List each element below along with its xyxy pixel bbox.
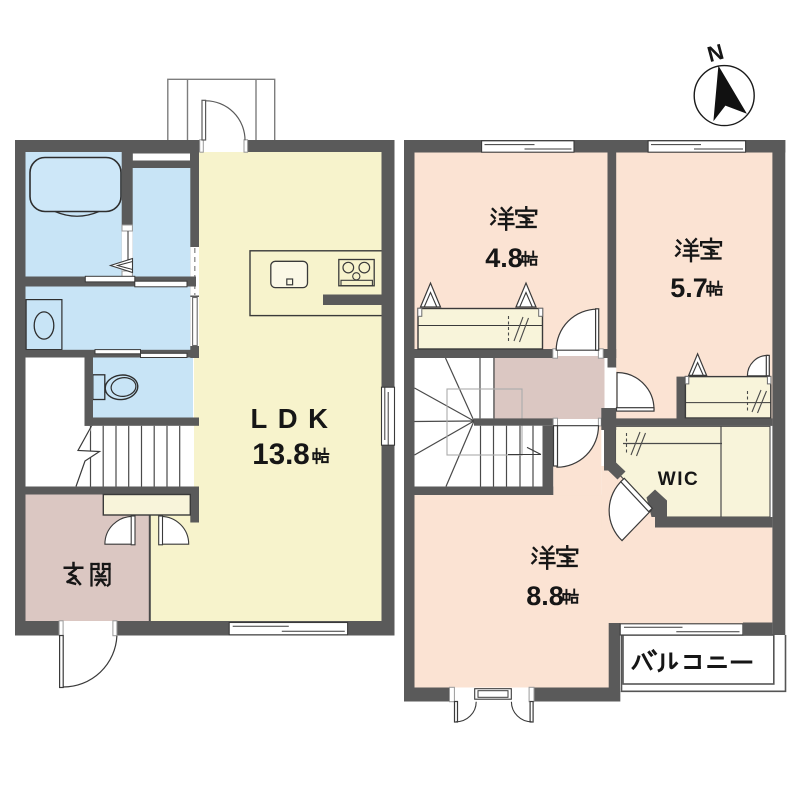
svg-text:4.8: 4.8: [485, 243, 523, 273]
svg-text:WIC: WIC: [658, 469, 699, 490]
svg-text:5.7: 5.7: [670, 273, 708, 303]
svg-text:8.8: 8.8: [526, 581, 564, 611]
svg-text:13.8: 13.8: [252, 438, 309, 471]
svg-text:LDK: LDK: [250, 403, 338, 434]
